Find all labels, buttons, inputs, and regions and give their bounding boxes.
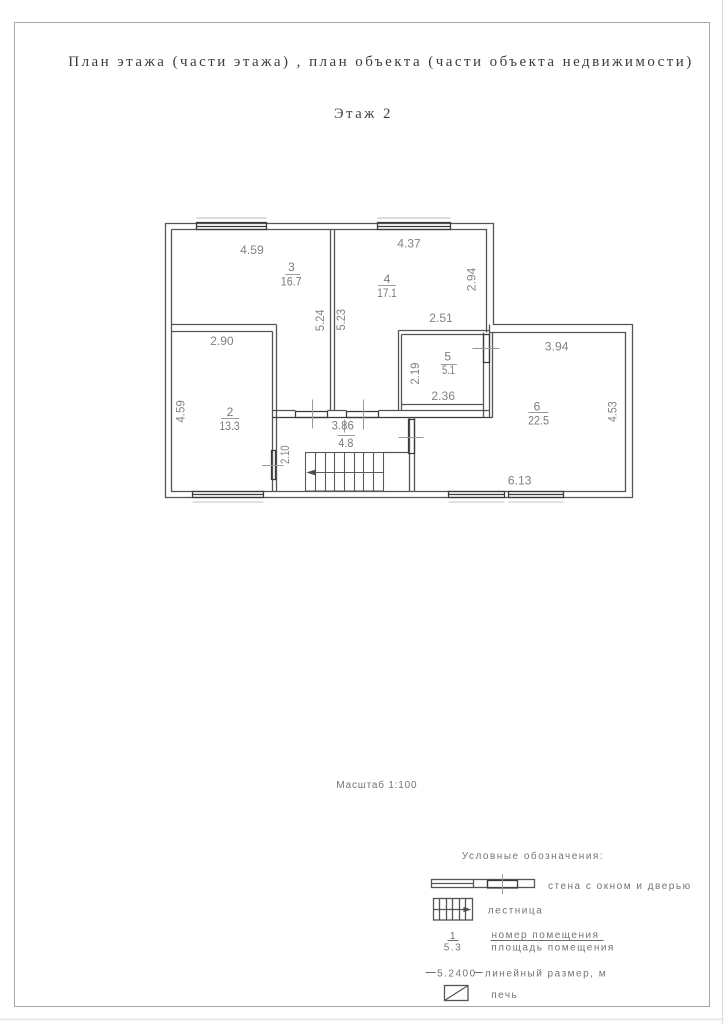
- svg-text:2: 2: [227, 405, 234, 419]
- svg-text:4: 4: [384, 272, 391, 286]
- svg-text:печь: печь: [491, 990, 518, 1001]
- svg-text:стена с окном и дверью: стена с окном и дверью: [548, 881, 692, 892]
- svg-text:2.36: 2.36: [431, 389, 455, 403]
- svg-text:3: 3: [288, 260, 295, 274]
- svg-text:2.10: 2.10: [278, 445, 292, 464]
- svg-text:Масштаб 1:100: Масштаб 1:100: [336, 779, 417, 791]
- svg-text:2.90: 2.90: [210, 334, 234, 348]
- svg-text:номер помещения: номер помещения: [492, 930, 600, 941]
- svg-text:4.59: 4.59: [173, 400, 187, 423]
- svg-text:5.23: 5.23: [334, 309, 348, 331]
- svg-text:2.94: 2.94: [464, 267, 478, 291]
- svg-text:16.7: 16.7: [281, 274, 302, 288]
- svg-text:2.19: 2.19: [408, 362, 422, 384]
- svg-text:3.86: 3.86: [332, 418, 355, 432]
- svg-text:4.59: 4.59: [240, 243, 264, 257]
- svg-text:5.1: 5.1: [442, 363, 455, 377]
- svg-text:План этажа (части этажа) , пла: План этажа (части этажа) , план объекта …: [68, 54, 693, 70]
- svg-text:линейный размер, м: линейный размер, м: [485, 968, 607, 979]
- svg-text:2.51: 2.51: [429, 311, 453, 325]
- svg-text:22.5: 22.5: [528, 414, 549, 428]
- svg-text:5: 5: [444, 350, 451, 364]
- svg-text:6: 6: [534, 400, 541, 414]
- svg-text:5.24: 5.24: [313, 309, 327, 331]
- svg-text:4.53: 4.53: [606, 401, 620, 422]
- svg-text:5.3: 5.3: [444, 943, 462, 954]
- svg-text:4.8: 4.8: [338, 436, 353, 450]
- svg-text:Условные обозначения:: Условные обозначения:: [462, 850, 604, 862]
- svg-text:17.1: 17.1: [377, 286, 397, 300]
- svg-text:площадь помещения: площадь помещения: [491, 943, 615, 954]
- svg-text:3.94: 3.94: [545, 339, 569, 353]
- svg-text:13.3: 13.3: [219, 419, 240, 433]
- svg-text:Этаж 2: Этаж 2: [334, 106, 393, 122]
- svg-text:4.37: 4.37: [397, 237, 421, 251]
- svg-text:6.13: 6.13: [508, 474, 532, 488]
- svg-text:лестница: лестница: [488, 905, 543, 916]
- svg-text:5.2400: 5.2400: [437, 968, 477, 979]
